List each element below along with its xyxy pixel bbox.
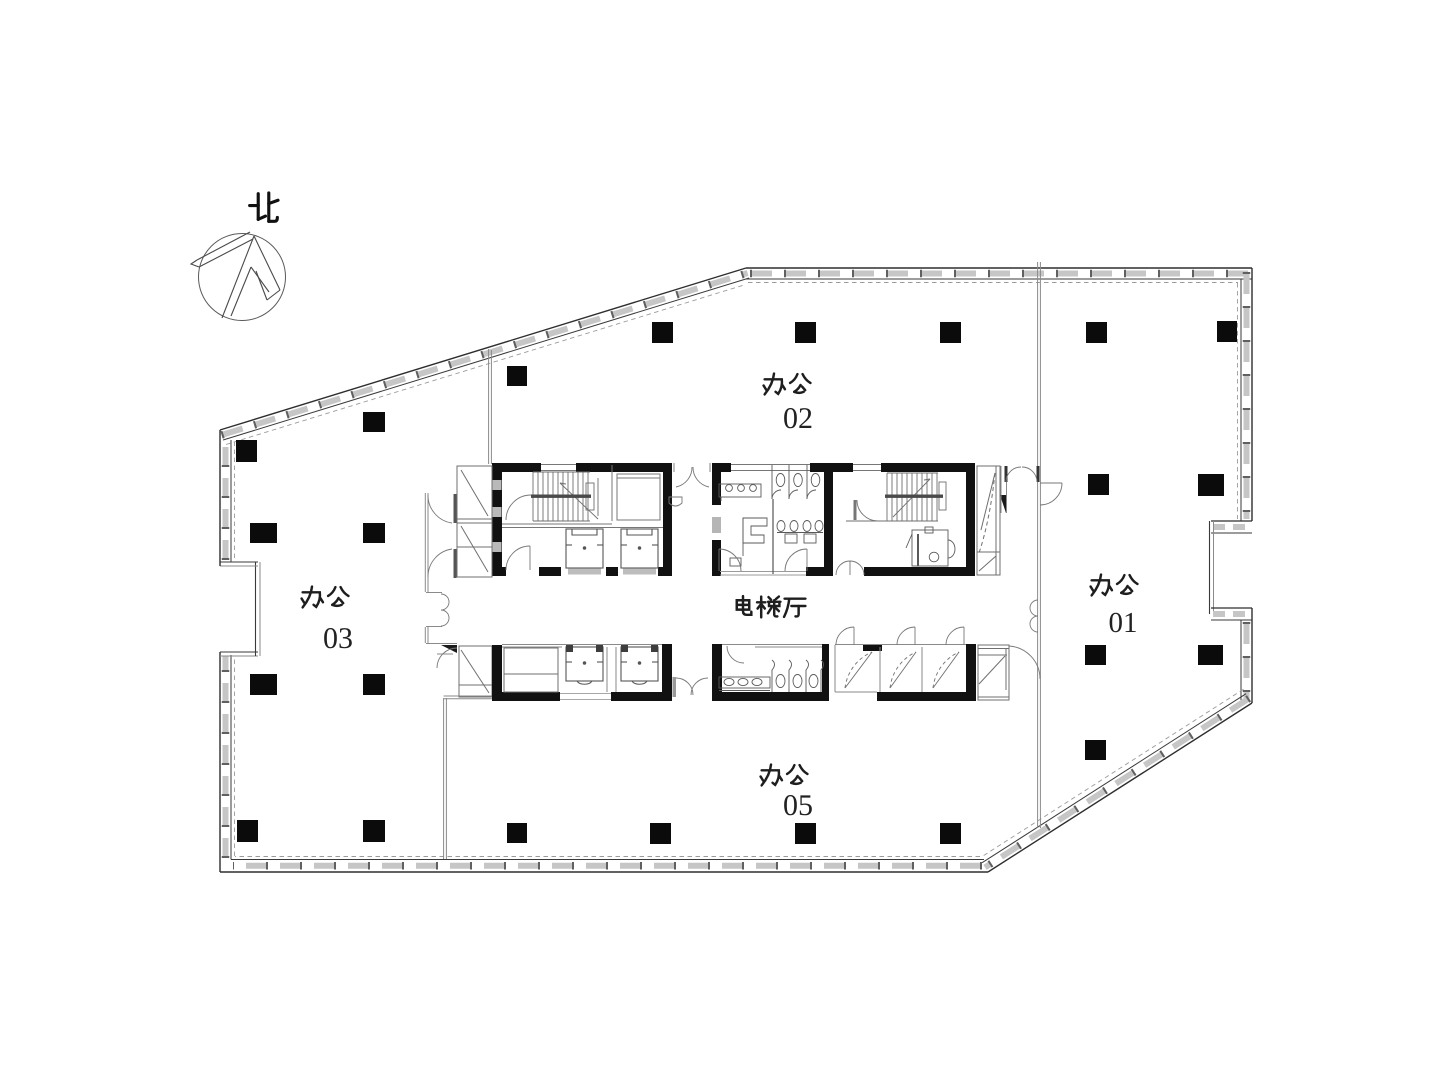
svg-text:01: 01 [1109, 607, 1138, 639]
svg-text:05: 05 [783, 789, 813, 822]
svg-text:02: 02 [783, 402, 813, 435]
svg-text:03: 03 [323, 622, 353, 655]
